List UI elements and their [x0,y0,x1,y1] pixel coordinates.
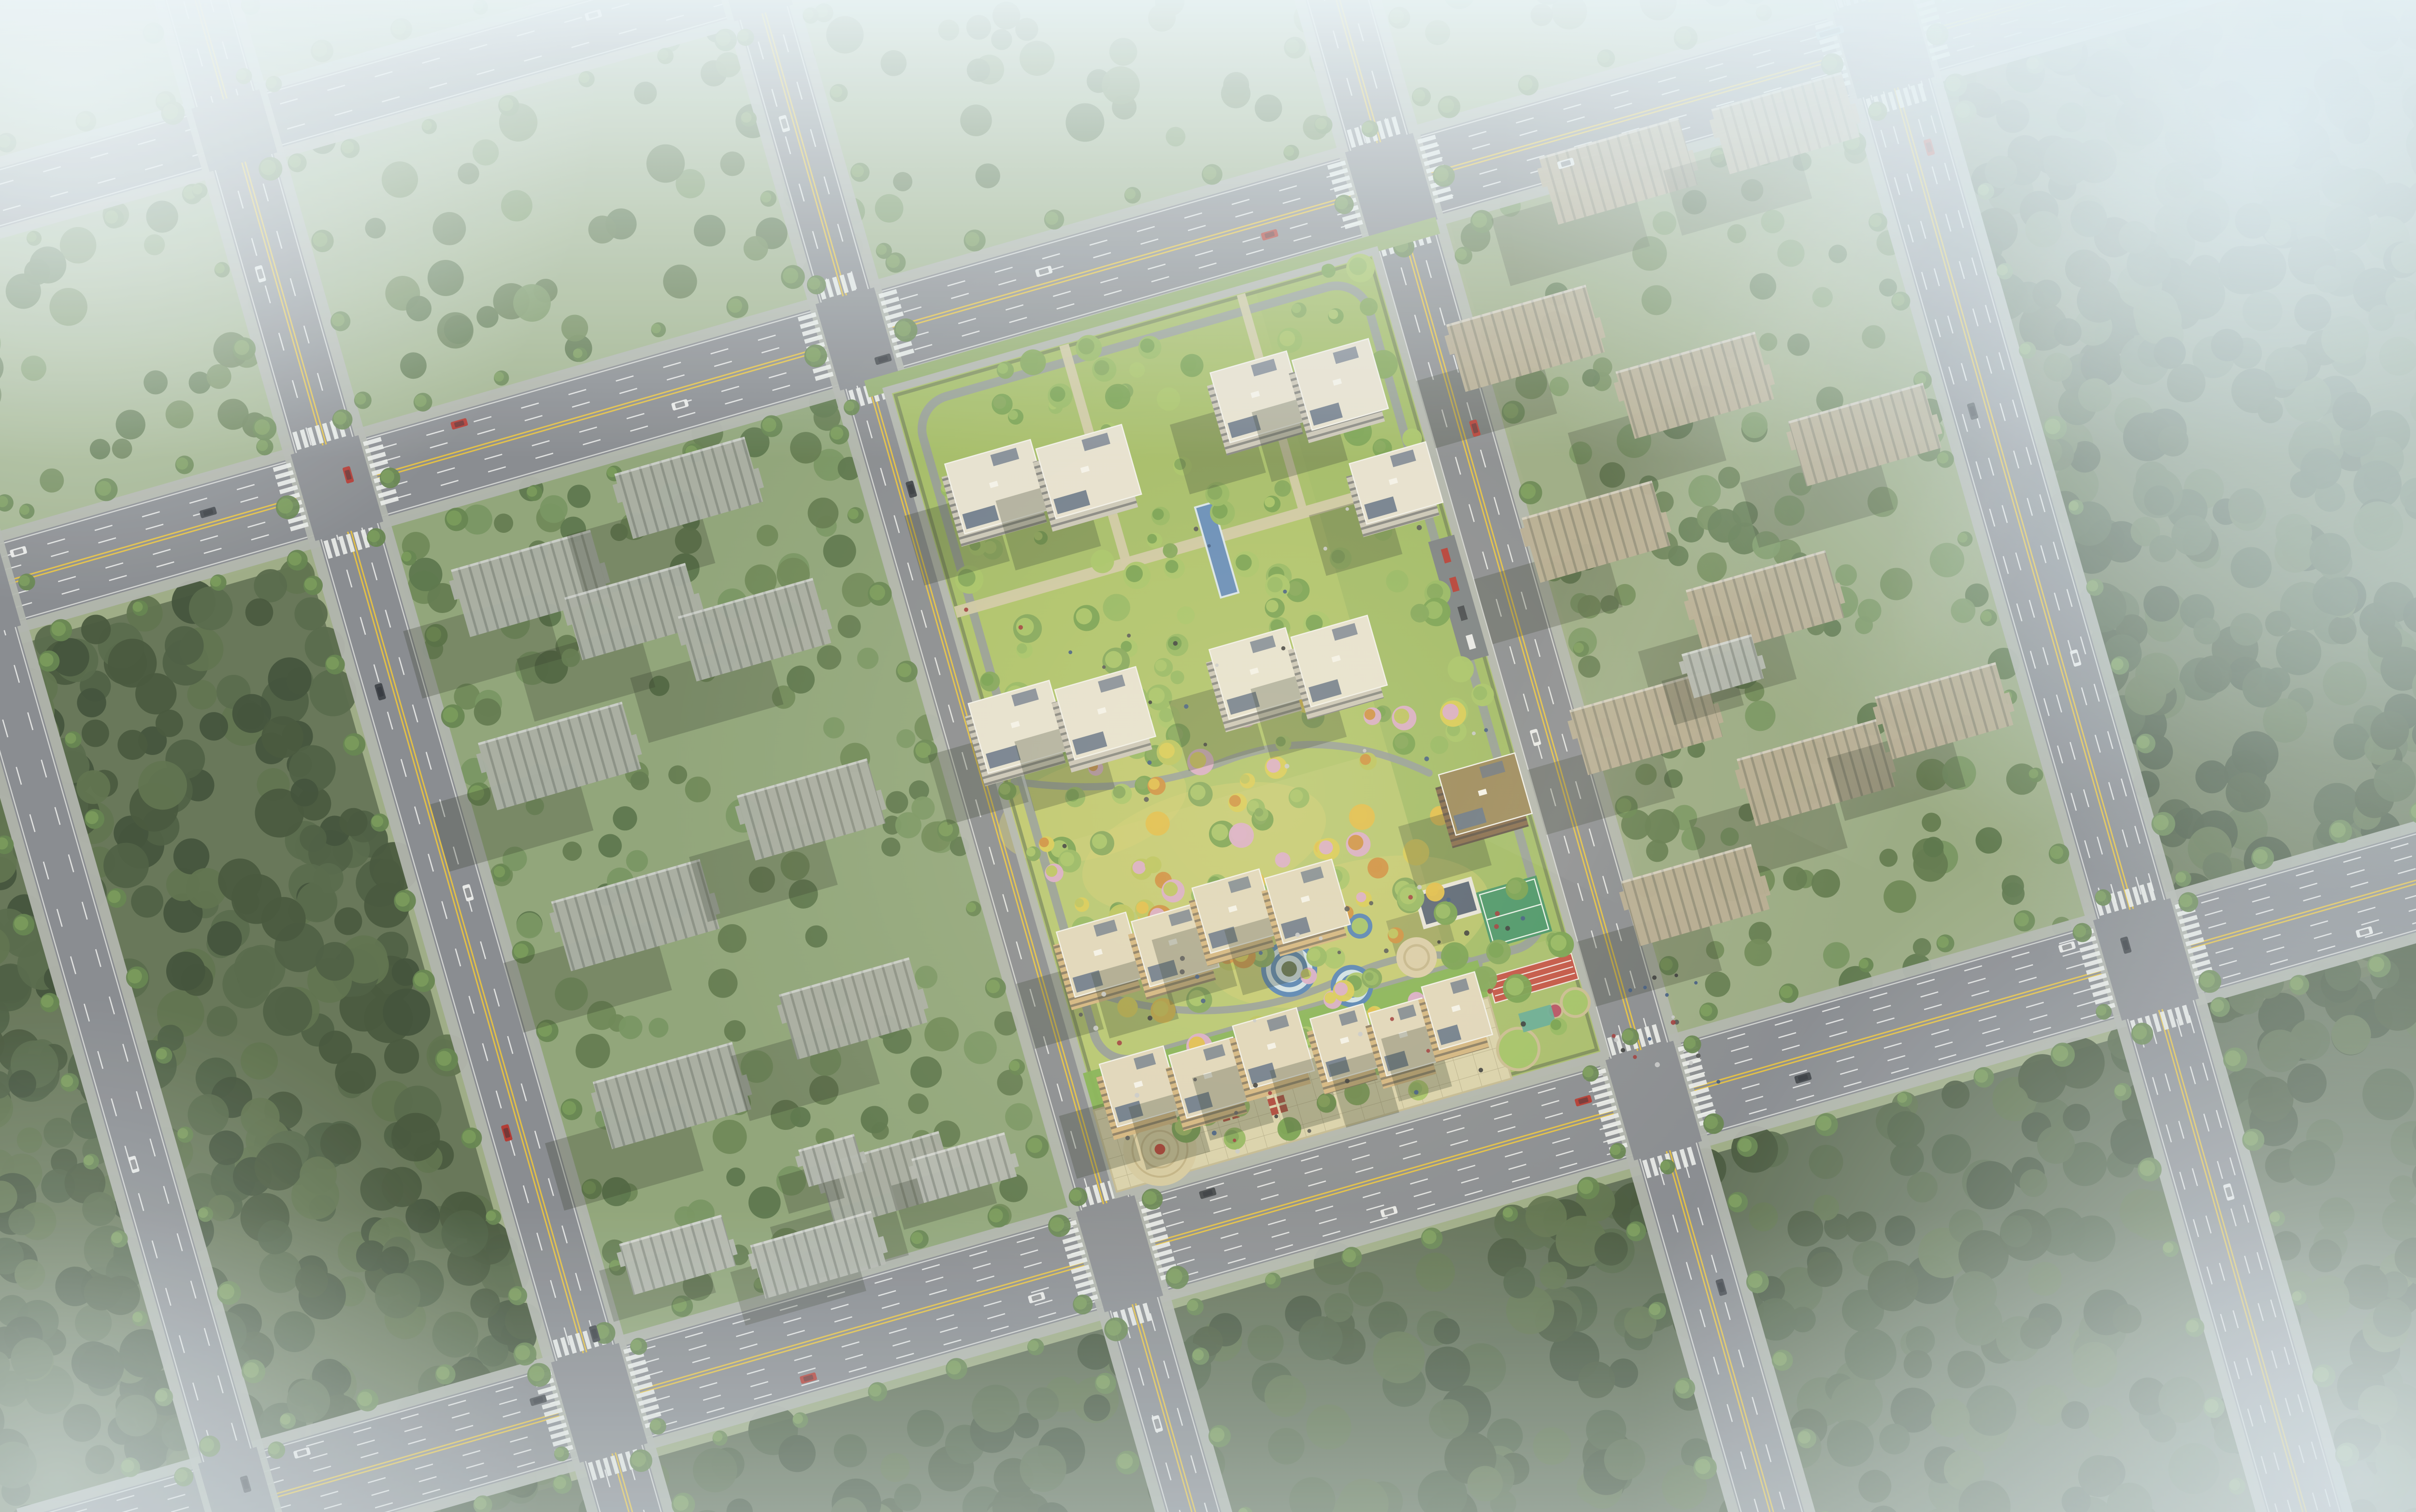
aerial-masterplan-render [0,0,2416,1512]
atmosphere [0,0,2416,1512]
rendered-scene [0,0,2416,1512]
